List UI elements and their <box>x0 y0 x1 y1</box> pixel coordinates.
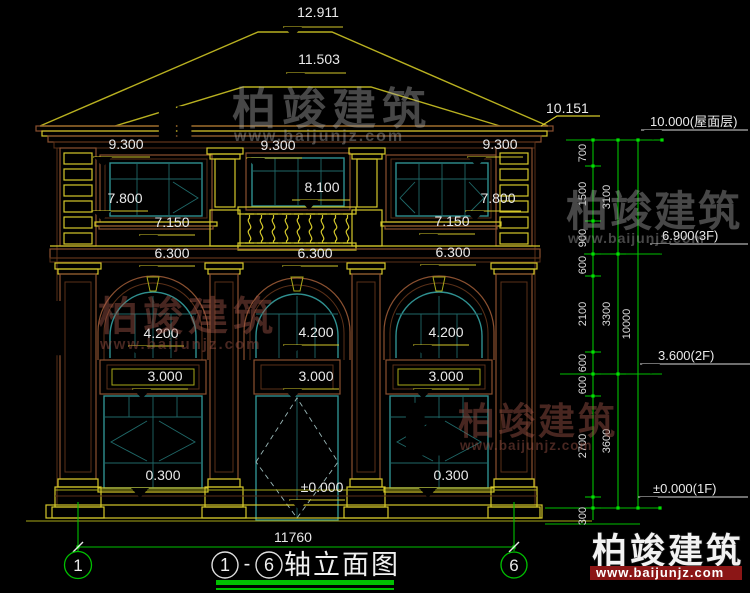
watermark-top: 柏竣建筑 www.baijunjz.com <box>131 85 432 155</box>
marker-text: 7.150 <box>434 213 469 229</box>
watermark-url: www.baijunjz.com <box>567 230 705 246</box>
title-axis-start: 1 <box>220 555 230 575</box>
dim-label: 600 <box>577 376 589 394</box>
marker-text: 7.800 <box>107 190 142 206</box>
watermark-brand: 柏竣建筑 <box>232 85 432 134</box>
title-underline-thin <box>216 588 394 590</box>
level-label: 3.600(2F) <box>658 348 714 363</box>
axis-number: 6 <box>509 556 518 575</box>
marker-text: 3.000 <box>147 368 182 384</box>
dim-label: 3300 <box>601 302 613 326</box>
marker-text: 7.800 <box>480 190 515 206</box>
marker-arch-center: 4.200 <box>283 324 339 355</box>
title-axis-end: 6 <box>264 555 274 575</box>
marker-floor2-left: 6.300 <box>139 245 195 276</box>
title-underline <box>216 580 394 585</box>
axis-number: 1 <box>73 556 82 575</box>
marker-text: 0.300 <box>433 467 468 483</box>
marker-text: 6.300 <box>297 245 332 261</box>
dim-label: 600 <box>577 354 589 372</box>
marker-text: 3.000 <box>428 368 463 384</box>
marker-text: 11.503 <box>298 51 340 67</box>
pilaster-3 <box>344 263 388 518</box>
drawing-canvas: 12.911 11.503 10.151 9.300 9.300 9.300 8… <box>0 0 750 593</box>
marker-text: 9.300 <box>108 136 143 152</box>
level-2f: 3.600(2F) <box>640 348 750 374</box>
marker-text: ±0.000 <box>301 479 344 495</box>
watermark-brand: 柏竣建筑 <box>98 295 278 339</box>
brand-logo-icon <box>14 300 108 372</box>
arched-window-right <box>384 276 494 492</box>
cad-elevation-drawing: 12.911 11.503 10.151 9.300 9.300 9.300 8… <box>0 0 750 593</box>
marker-text: 4.200 <box>298 324 333 340</box>
brand-logo-footer: 柏竣建筑 www.baijunjz.com <box>516 530 744 593</box>
marker-sill-right: 0.300 <box>418 467 474 498</box>
marker-text: 8.100 <box>304 179 339 195</box>
marker-text: 6.300 <box>435 244 470 260</box>
title-separator: - <box>244 553 251 575</box>
balustrade <box>238 207 356 250</box>
level-label: ±0.000(1F) <box>653 481 717 496</box>
watermark-mid-right: 柏竣建筑 www.baijunjz.com <box>376 400 618 472</box>
dim-label: 10000 <box>621 309 633 340</box>
marker-sill-left: 0.300 <box>130 467 186 498</box>
marker-right-eave: 10.151 <box>541 100 600 126</box>
dim-label: 300 <box>577 507 589 525</box>
quoin-left <box>60 148 96 246</box>
marker-text: 3.000 <box>298 368 333 384</box>
brand-logo-icon <box>131 91 214 155</box>
watermark-url: www.baijunjz.com <box>233 128 404 145</box>
level-roof: 10.000(屋面层) <box>641 114 748 140</box>
level-label: 10.000(屋面层) <box>650 114 737 129</box>
balcony-column-right <box>349 148 385 246</box>
title-text: 轴立面图 <box>284 550 400 580</box>
watermark-brand: 柏竣建筑 <box>566 188 742 235</box>
marker-window-head-right: 7.800 <box>465 190 521 221</box>
marker-text: 9.300 <box>482 136 517 152</box>
right-dimension-chains: 700 1500 900 600 2100 600 600 2700 300 3… <box>545 114 750 525</box>
marker-front-ridge: 11.503 <box>286 51 346 83</box>
footer-url-text: www.baijunjz.com <box>595 565 724 580</box>
level-1f: ±0.000(1F) <box>638 481 748 507</box>
overall-width-dimension: 11760 <box>274 529 312 545</box>
watermark-url: www.baijunjz.com <box>459 438 593 453</box>
drawing-title: 1 - 6 轴立面图 <box>212 550 400 590</box>
dim-label: 2100 <box>577 302 589 326</box>
marker-text: 0.300 <box>145 467 180 483</box>
dim-label: 600 <box>577 256 589 274</box>
watermark-brand: 柏竣建筑 <box>458 400 618 442</box>
marker-text: 10.151 <box>546 100 589 116</box>
marker-eave-right: 9.300 <box>467 136 523 167</box>
marker-text: 12.911 <box>297 4 339 20</box>
dim-label: 700 <box>577 144 589 162</box>
marker-text: 7.150 <box>154 214 189 230</box>
pilaster-4 <box>488 263 540 518</box>
marker-text: 6.300 <box>154 245 189 261</box>
watermark-url: www.baijunjz.com <box>99 336 261 353</box>
marker-text: 4.200 <box>428 324 463 340</box>
